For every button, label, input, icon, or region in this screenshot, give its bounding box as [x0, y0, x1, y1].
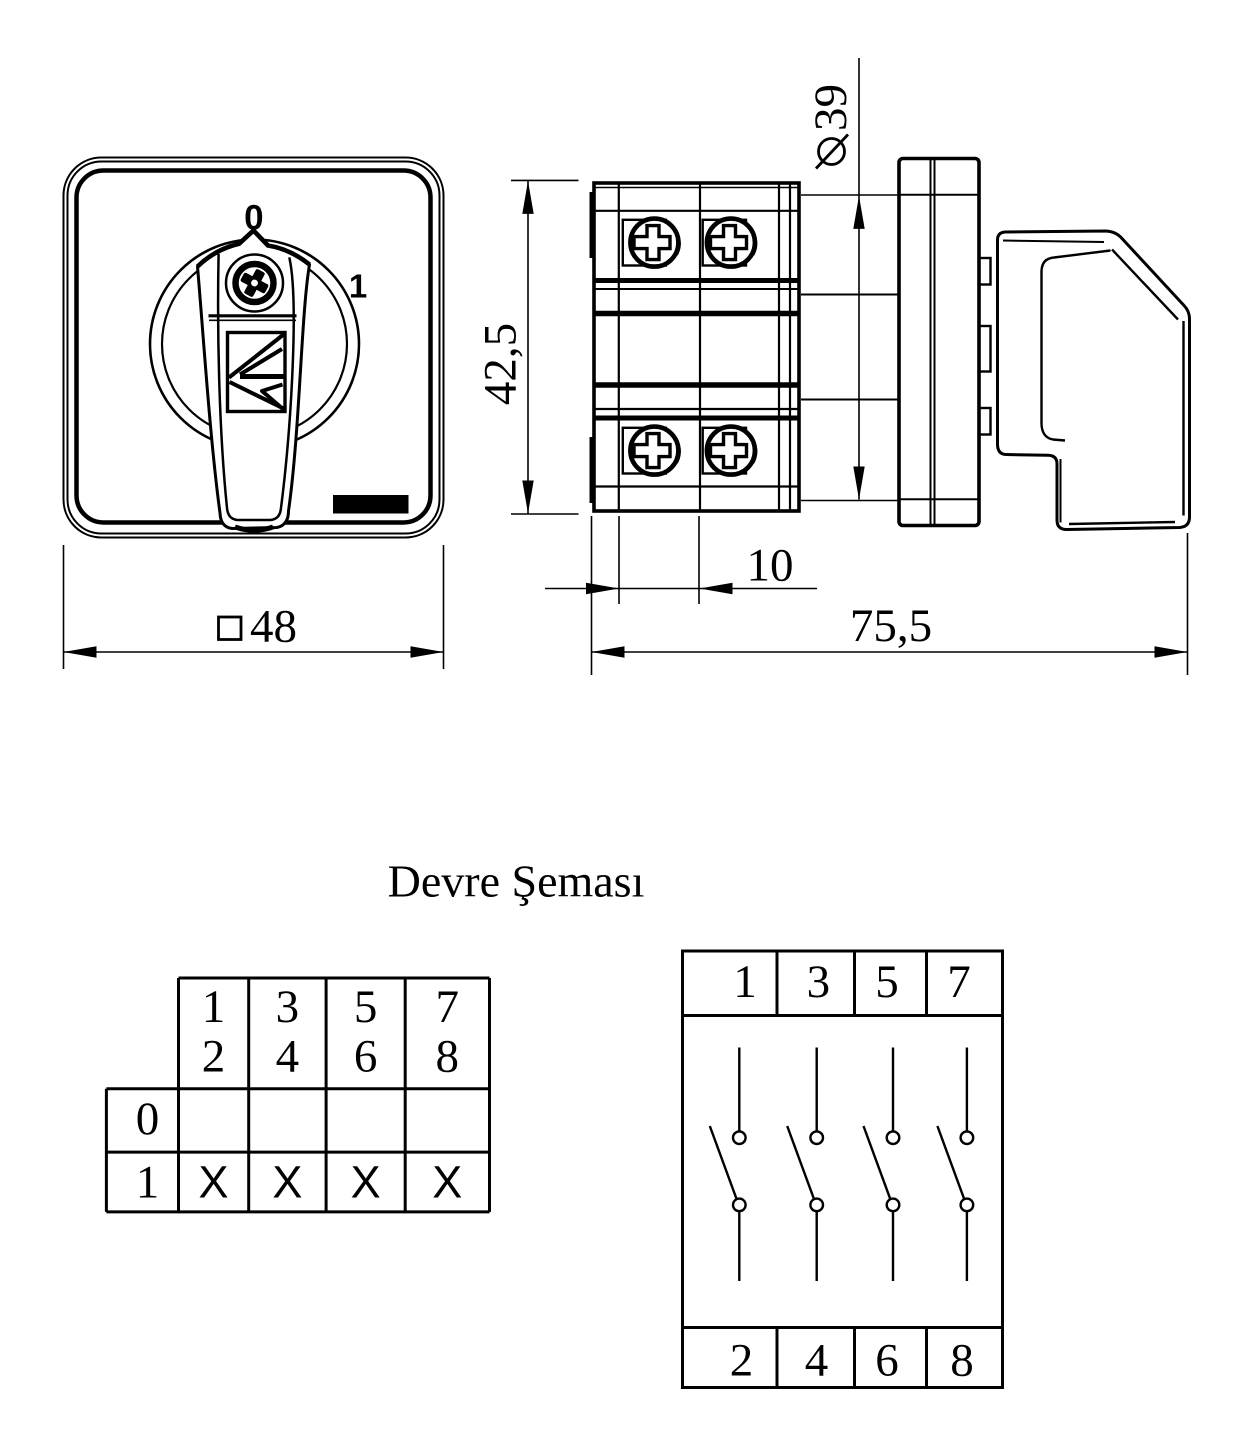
svg-text:0: 0	[136, 1093, 160, 1145]
svg-text:6: 6	[875, 1335, 899, 1387]
svg-text:1: 1	[349, 268, 367, 305]
svg-text:X: X	[351, 1157, 381, 1208]
svg-text:1: 1	[136, 1157, 160, 1209]
svg-text:X: X	[272, 1157, 302, 1208]
svg-text:42,5: 42,5	[475, 323, 527, 405]
svg-text:8: 8	[436, 1031, 460, 1083]
svg-text:1: 1	[202, 981, 226, 1033]
svg-text:10: 10	[747, 540, 794, 592]
svg-text:75,5: 75,5	[850, 600, 932, 652]
svg-text:Devre Şeması: Devre Şeması	[388, 856, 645, 907]
svg-text:48: 48	[250, 601, 297, 653]
svg-text:3: 3	[807, 956, 831, 1008]
svg-text:5: 5	[354, 981, 378, 1033]
svg-text:6: 6	[354, 1031, 378, 1083]
svg-text:2: 2	[730, 1335, 754, 1387]
svg-text:3: 3	[276, 981, 300, 1033]
svg-text:39: 39	[805, 84, 857, 131]
svg-text:4: 4	[805, 1335, 829, 1387]
svg-text:2: 2	[202, 1031, 226, 1083]
svg-text:8: 8	[950, 1335, 974, 1387]
svg-text:7: 7	[436, 981, 460, 1033]
svg-text:0: 0	[244, 199, 263, 238]
svg-text:4: 4	[276, 1031, 300, 1083]
svg-text:1: 1	[733, 956, 757, 1008]
svg-text:X: X	[198, 1157, 228, 1208]
svg-text:X: X	[432, 1157, 462, 1208]
svg-text:7: 7	[947, 956, 971, 1008]
svg-text:5: 5	[875, 956, 899, 1008]
